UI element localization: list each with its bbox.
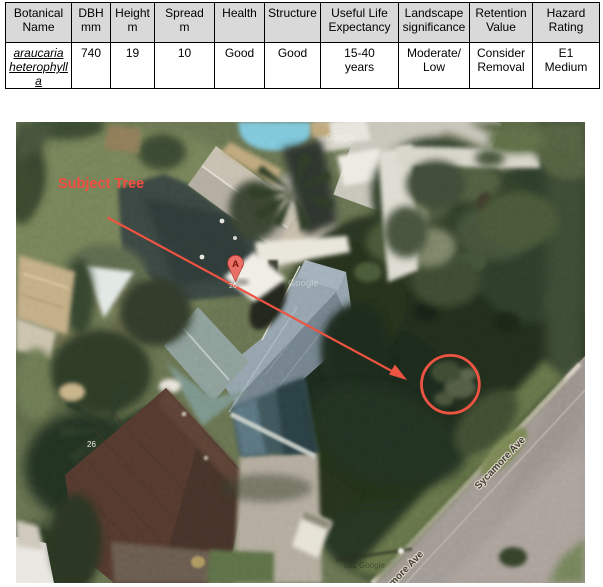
svg-text:26: 26 (229, 283, 237, 290)
svg-text:A: A (232, 259, 239, 270)
